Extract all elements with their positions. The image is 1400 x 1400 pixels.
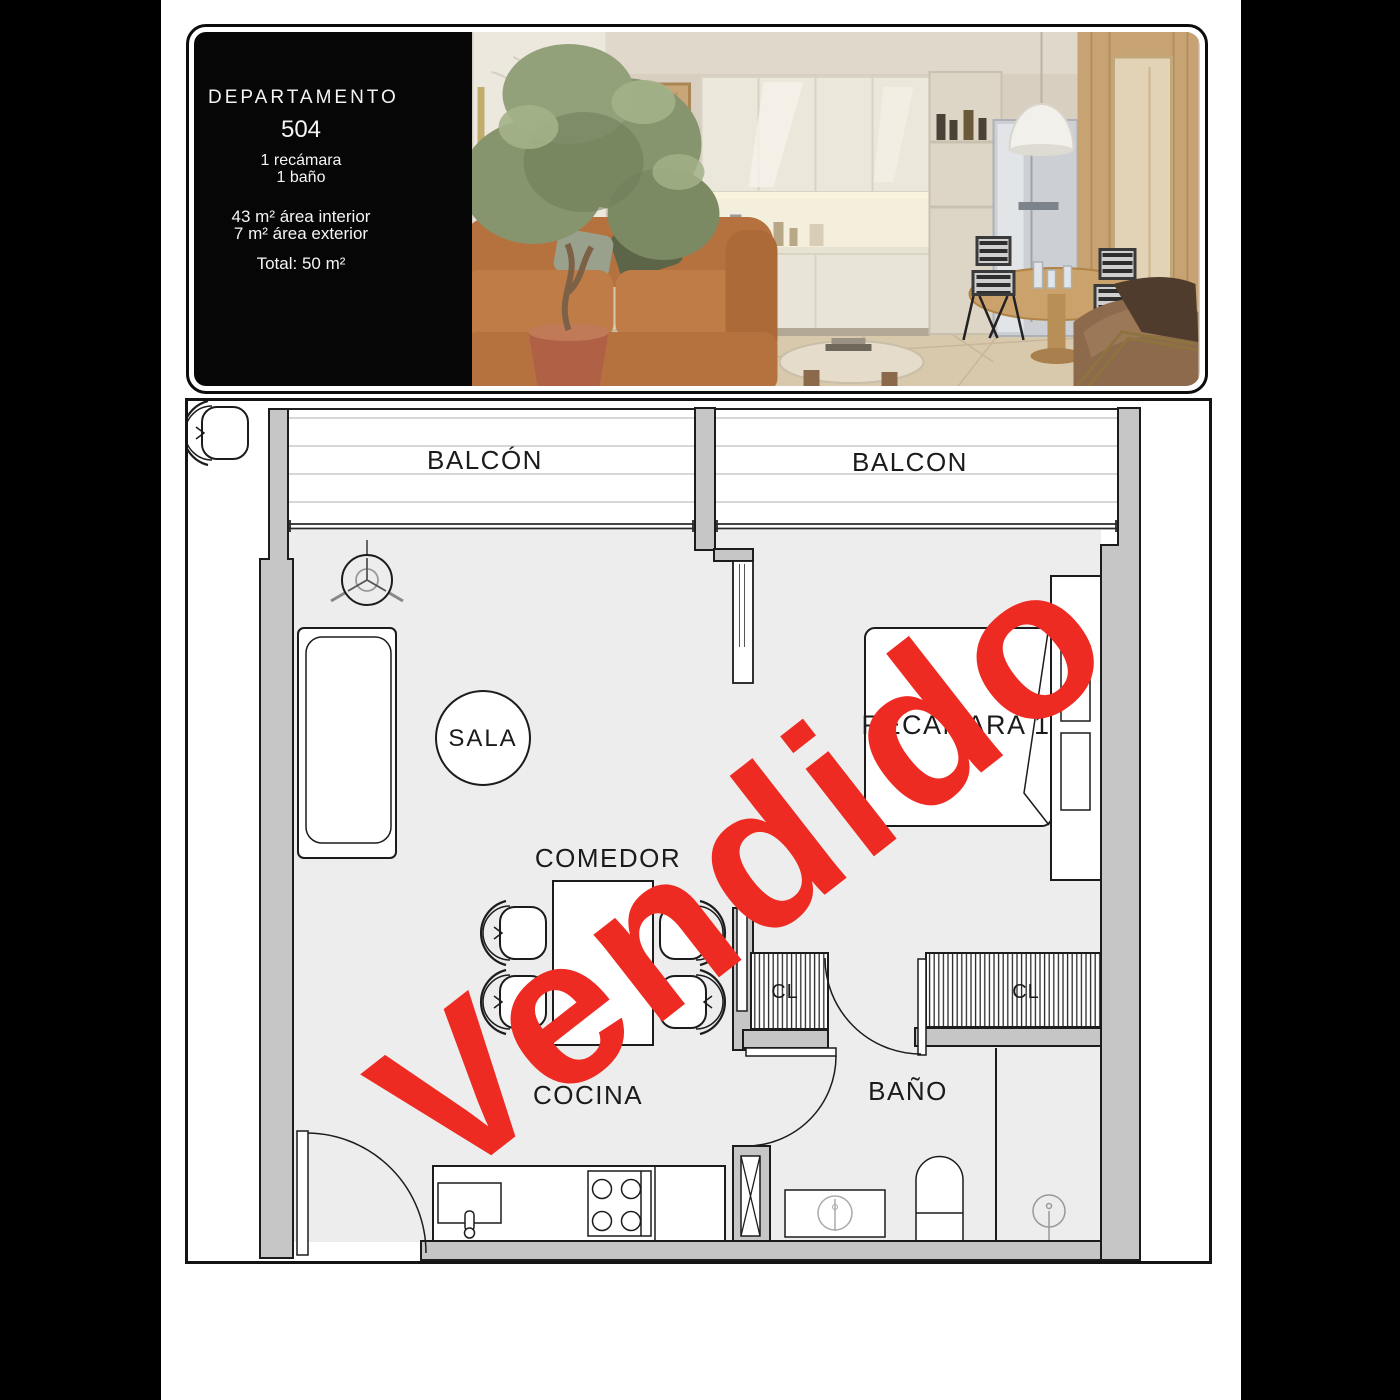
unit-bathrooms: 1 baño bbox=[208, 169, 394, 186]
right-black-bar bbox=[1241, 0, 1400, 1400]
left-black-bar bbox=[0, 0, 161, 1400]
label-balcony-right: BALCON bbox=[852, 447, 968, 477]
label-closet-2: CL bbox=[1012, 981, 1040, 1003]
toilet bbox=[916, 1157, 963, 1241]
floor-plan-drawing: BALCÓN BALCON COMEDOR COCINA BAÑO RECAMA… bbox=[188, 401, 1209, 1261]
label-living: SALA bbox=[448, 725, 517, 752]
unit-number: 504 bbox=[208, 116, 394, 144]
label-balcony-left: BALCÓN bbox=[427, 445, 543, 475]
unit-bedrooms: 1 recámara bbox=[208, 152, 394, 169]
sofa bbox=[298, 628, 396, 858]
label-closet-1: CL bbox=[771, 981, 799, 1003]
shaft bbox=[741, 1156, 760, 1236]
apartment-photo-illustration bbox=[472, 32, 1200, 386]
unit-info-panel: DEPARTAMENTO 504 1 recámara 1 baño 43 m²… bbox=[194, 32, 472, 386]
living-label-bubble: SALA bbox=[436, 691, 530, 785]
listing-card: DEPARTAMENTO 504 1 recámara 1 baño 43 m²… bbox=[186, 24, 1208, 394]
unit-title: DEPARTAMENTO bbox=[208, 87, 394, 109]
unit-exterior-area: 7 m² área exterior bbox=[208, 225, 394, 242]
floor-plan: BALCÓN BALCON COMEDOR COCINA BAÑO RECAMA… bbox=[185, 398, 1212, 1264]
unit-total-area: Total: 50 m² bbox=[208, 255, 394, 272]
unit-interior-area: 43 m² área interior bbox=[208, 208, 394, 225]
label-bathroom: BAÑO bbox=[868, 1076, 948, 1106]
stove bbox=[588, 1171, 651, 1236]
label-dining: COMEDOR bbox=[535, 843, 681, 873]
apartment-photo bbox=[472, 32, 1200, 386]
label-bedroom: RECAMARA 1 bbox=[861, 710, 1050, 740]
bathroom-sink bbox=[785, 1190, 885, 1237]
kitchen-counter bbox=[433, 1166, 725, 1241]
label-kitchen: COCINA bbox=[533, 1080, 643, 1110]
